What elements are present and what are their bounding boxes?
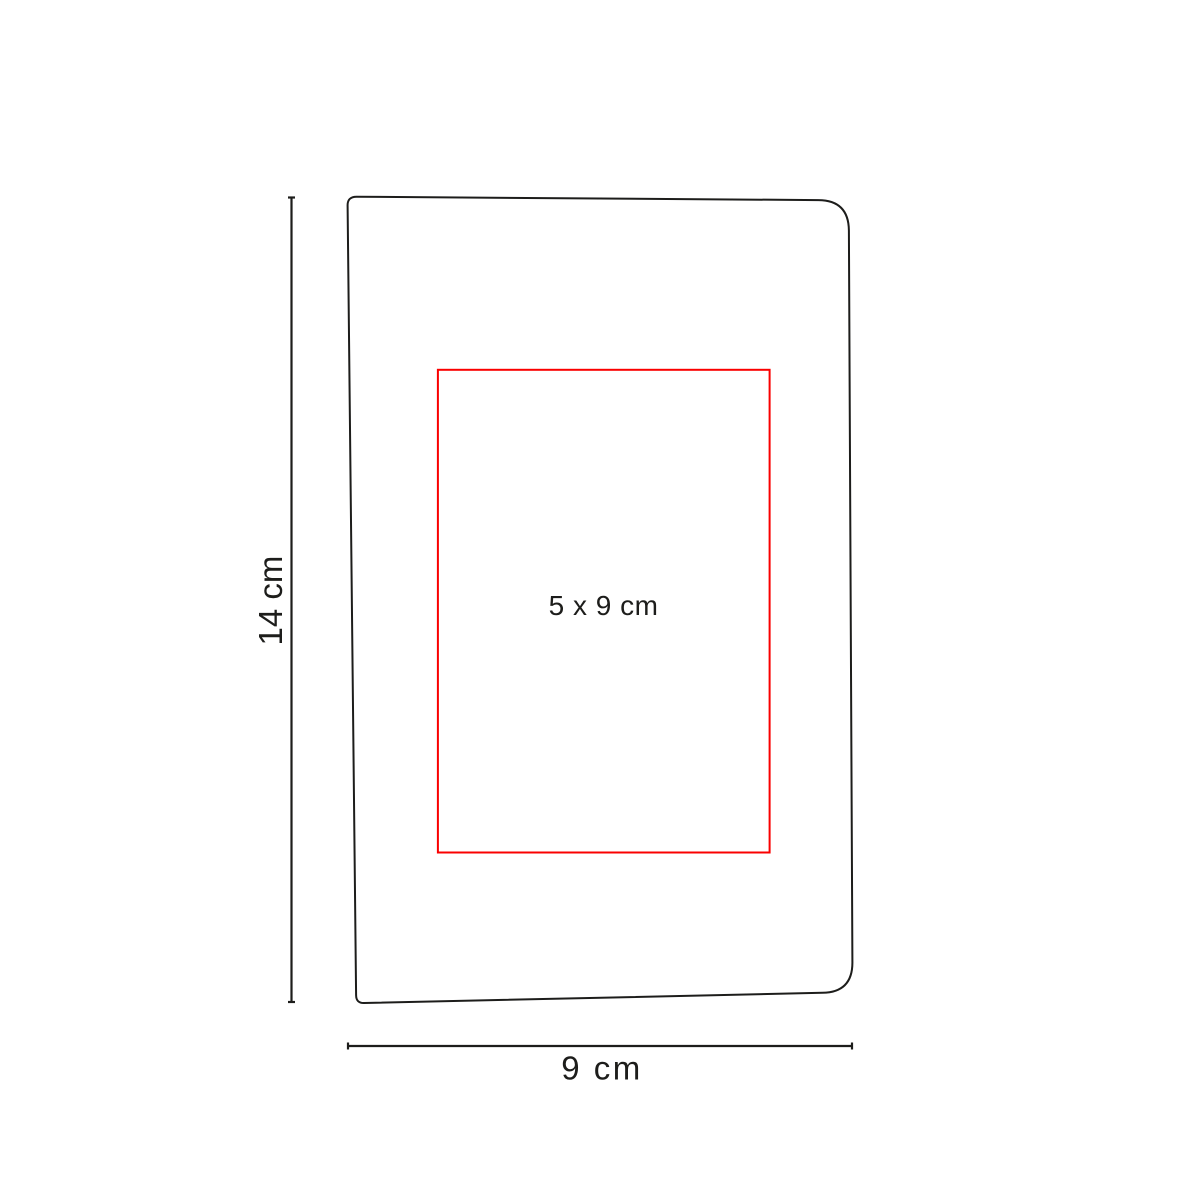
svg-text:9 cm: 9 cm bbox=[561, 1049, 643, 1086]
svg-text:14 cm: 14 cm bbox=[252, 556, 289, 646]
svg-text:5 x 9 cm: 5 x 9 cm bbox=[549, 590, 659, 621]
